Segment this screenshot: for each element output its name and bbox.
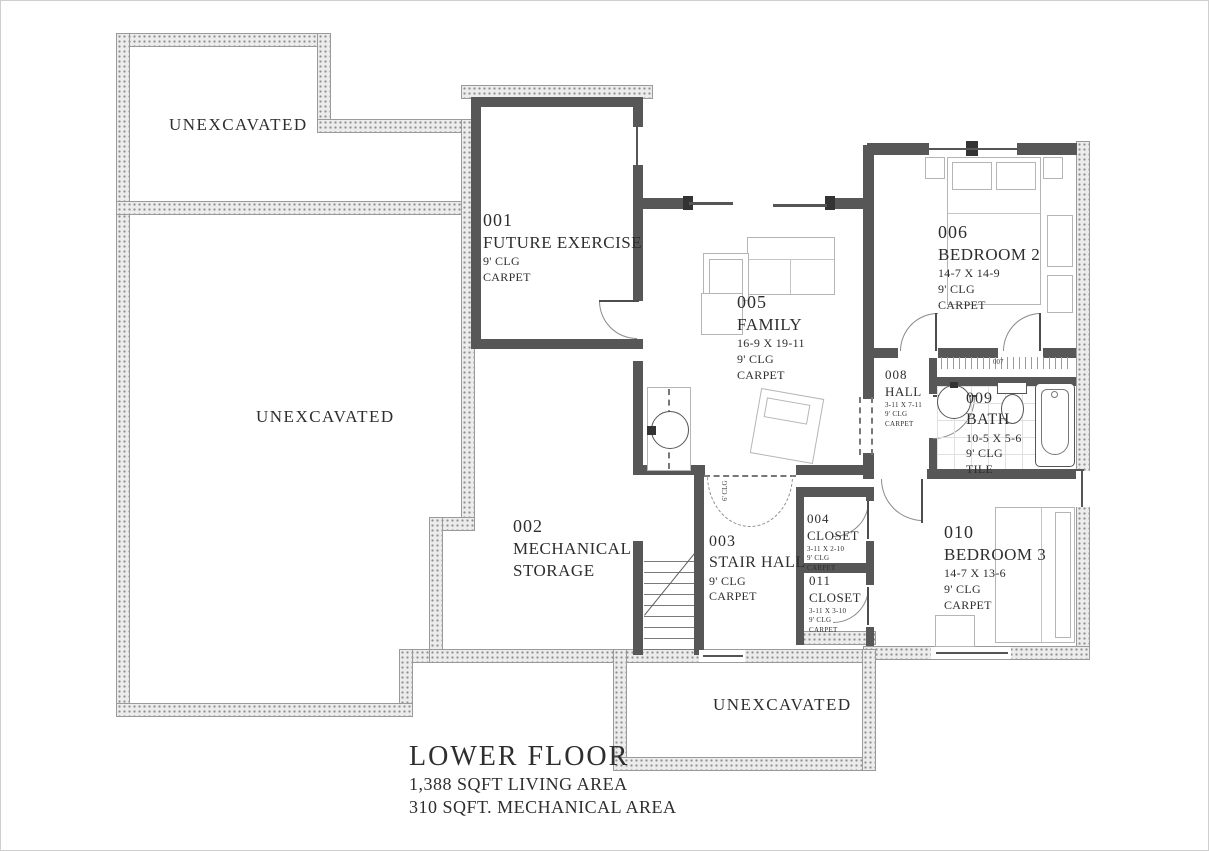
foundation-wall <box>317 33 331 133</box>
door-arc-icon <box>900 313 938 351</box>
sofa-cushion-line <box>790 259 791 294</box>
stairs-icon <box>644 561 694 655</box>
wall-segment <box>796 487 874 497</box>
room-label-010: 010 BEDROOM 3 14-7 X 13-6 9' CLG CARPET <box>944 521 1046 613</box>
wall-segment <box>874 348 898 358</box>
door-arc-icon <box>599 301 637 339</box>
window-icon <box>929 148 1017 150</box>
arch-opening-icon <box>707 475 793 527</box>
foundation-wall <box>116 33 331 47</box>
water-heater-icon <box>651 411 689 449</box>
pillow <box>952 162 992 190</box>
door-leaf-icon <box>867 587 869 625</box>
living-area-note: 1,388 SQFT LIVING AREA <box>409 773 677 796</box>
bathtub-inner <box>1041 389 1069 455</box>
foundation-wall <box>1076 141 1090 473</box>
cased-opening <box>859 397 861 455</box>
dresser <box>1047 275 1073 313</box>
wall-segment <box>471 97 643 107</box>
door-leaf-icon <box>1039 313 1041 351</box>
unexcavated-label-top: UNEXCAVATED <box>169 115 308 135</box>
pillow <box>1055 512 1071 638</box>
unexcavated-label-bottom: UNEXCAVATED <box>713 695 852 715</box>
nightstand <box>925 157 945 179</box>
cased-opening <box>871 397 873 455</box>
door-leaf-icon <box>867 501 869 539</box>
door-leaf-icon <box>599 300 639 302</box>
pillow <box>996 162 1036 190</box>
door-leaf-icon <box>935 313 937 351</box>
window-icon <box>703 655 743 657</box>
blanket-line <box>948 213 1040 214</box>
wall-segment <box>867 143 929 155</box>
sink-faucet <box>950 382 958 388</box>
opening-ceiling-label: 6' CLG <box>721 480 729 501</box>
dresser <box>935 615 975 647</box>
closet-shelf-icon <box>941 357 1071 369</box>
sliding-door-icon <box>689 202 733 205</box>
sofa-back-line <box>748 259 834 260</box>
title-block: LOWER FLOOR 1,388 SQFT LIVING AREA 310 S… <box>409 741 677 818</box>
foundation-wall <box>116 33 130 717</box>
window-icon <box>936 652 1008 654</box>
door-leaf-icon <box>921 479 923 523</box>
door-jamb <box>825 196 835 210</box>
wall-segment <box>863 453 874 479</box>
water-heater-valve <box>647 426 656 435</box>
floor-plan: 6' CLG 00 <box>0 0 1209 851</box>
window-opening <box>1076 471 1090 507</box>
room-label-006: 006 BEDROOM 2 14-7 X 14-9 9' CLG CARPET <box>938 221 1040 313</box>
foundation-wall <box>116 201 475 215</box>
wall-segment <box>633 198 689 209</box>
foundation-wall <box>317 119 475 133</box>
foundation-wall <box>1076 505 1090 659</box>
unexcavated-label-left: UNEXCAVATED <box>256 407 395 427</box>
wall-segment <box>866 627 874 646</box>
drawing-title: LOWER FLOOR <box>409 741 677 773</box>
room-label-005: 005 FAMILY 16-9 X 19-11 9' CLG CARPET <box>737 291 805 383</box>
room-label-003: 003 STAIR HALL 9' CLG CARPET <box>709 532 806 605</box>
room-label-009: 009 BATH 10-5 X 5-6 9' CLG TILE <box>966 389 1022 477</box>
foundation-wall <box>116 703 413 717</box>
room-label-004: 004 CLOSET 3-11 X 2-10 9' CLG CARPET <box>807 511 859 573</box>
wall-segment <box>633 541 643 655</box>
wall-segment <box>633 97 643 127</box>
nightstand <box>1043 157 1063 179</box>
wall-segment <box>471 97 481 349</box>
wall-segment <box>694 465 704 655</box>
room-label-007: 007 <box>993 358 1004 366</box>
room-label-002: 002 MECHANICAL STORAGE <box>513 515 631 583</box>
foundation-wall <box>862 649 876 771</box>
room-label-011: 011 CLOSET 3-11 X 3-10 9' CLG CARPET <box>809 573 861 635</box>
side-table-inner <box>709 259 743 295</box>
wall-segment <box>929 358 937 394</box>
sofa-icon <box>747 237 835 295</box>
wall-segment <box>633 361 643 475</box>
foundation-wall <box>429 517 443 663</box>
armchair-icon <box>750 388 824 464</box>
sliding-door-icon <box>773 204 827 207</box>
tub-drain <box>1051 391 1058 398</box>
window-icon <box>1081 471 1083 507</box>
dresser <box>1047 215 1073 267</box>
window-icon <box>636 127 638 165</box>
door-arc-icon <box>1003 313 1041 351</box>
wall-segment <box>863 145 874 399</box>
door-arc-icon <box>881 479 923 521</box>
mechanical-area-note: 310 SQFT. MECHANICAL AREA <box>409 796 677 819</box>
room-label-008: 008 HALL 3-11 X 7-11 9' CLG CARPET <box>885 367 922 429</box>
room-label-001: 001 FUTURE EXERCISE 9' CLG CARPET <box>483 209 642 286</box>
wall-segment <box>1017 143 1077 155</box>
wall-segment <box>471 339 643 349</box>
